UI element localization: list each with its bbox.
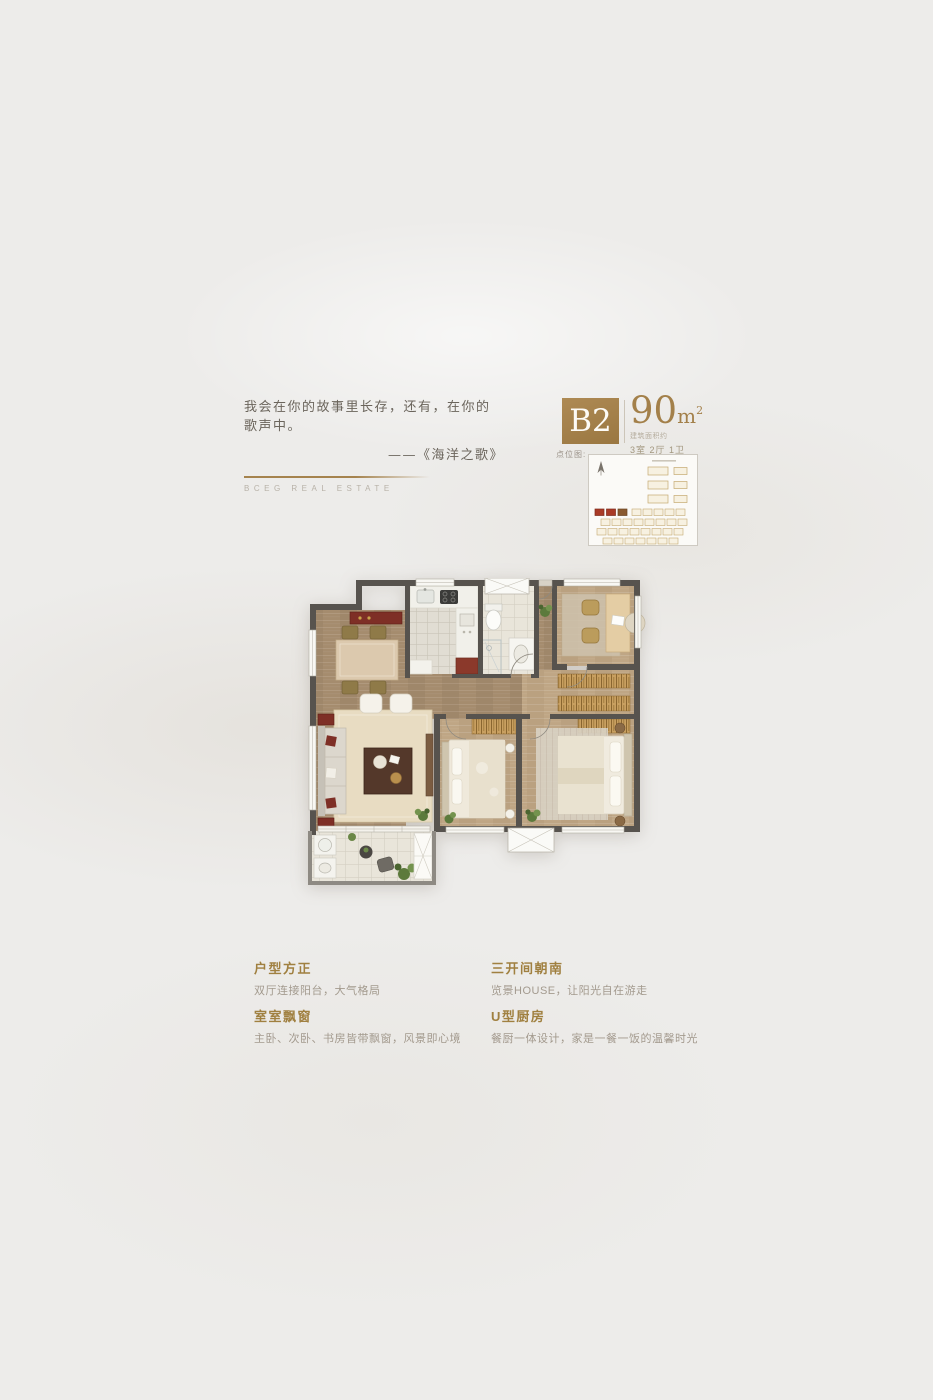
unit-area: 90m2 建筑面积约 3室 2厅 1卫 [630, 392, 703, 456]
feature-item: 三开间朝南 览景HOUSE，让阳光自在游走 [491, 958, 721, 998]
feature-title: U型厨房 [491, 1006, 721, 1025]
siteplan-label: 点位图: [556, 449, 586, 460]
quote-line-1: 我会在你的故事里长存，还有，在你的歌声中。 [244, 396, 504, 434]
brand-text: BCEG REAL ESTATE [244, 484, 504, 493]
feature-item: U型厨房 餐厨一体设计，家是一餐一饭的温馨时光 [491, 1006, 721, 1046]
area-number: 90 [630, 389, 677, 432]
feature-desc: 主卧、次卧、书房皆带飘窗，风景即心境 [254, 1030, 484, 1046]
unit-divider-line [624, 400, 625, 443]
area-note: 建筑面积约 [630, 431, 703, 441]
feature-title: 户型方正 [254, 958, 484, 977]
feature-desc: 览景HOUSE，让阳光自在游走 [491, 982, 721, 998]
poster-page: 我会在你的故事里长存，还有，在你的歌声中。 ——《海洋之歌》 BCEG REAL… [0, 0, 933, 1400]
highlighted-buildings [595, 509, 627, 516]
feature-item: 室室飘窗 主卧、次卧、书房皆带飘窗，风景即心境 [254, 1006, 484, 1046]
siteplan-side-buildings [648, 467, 687, 503]
area-unit: m [677, 404, 696, 428]
area-exponent: 2 [696, 404, 703, 417]
feature-desc: 双厅连接阳台，大气格局 [254, 982, 484, 998]
unit-code-badge: B2 [562, 398, 619, 444]
floorplan-image [306, 578, 648, 892]
feature-desc: 餐厨一体设计，家是一餐一饭的温馨时光 [491, 1030, 721, 1046]
master-bedroom [525, 723, 632, 826]
feature-item: 户型方正 双厅连接阳台，大气格局 [254, 958, 484, 998]
feature-title: 室室飘窗 [254, 1006, 484, 1025]
second-bedroom [442, 740, 515, 824]
living-room [318, 694, 433, 829]
siteplan-map [588, 454, 698, 546]
siteplan-caption-mark [652, 460, 676, 462]
quote-line-2: ——《海洋之歌》 [244, 444, 504, 463]
feature-title: 三开间朝南 [491, 958, 721, 977]
quote-block: 我会在你的故事里长存，还有，在你的歌声中。 ——《海洋之歌》 BCEG REAL… [244, 396, 504, 493]
gold-divider [244, 476, 430, 478]
